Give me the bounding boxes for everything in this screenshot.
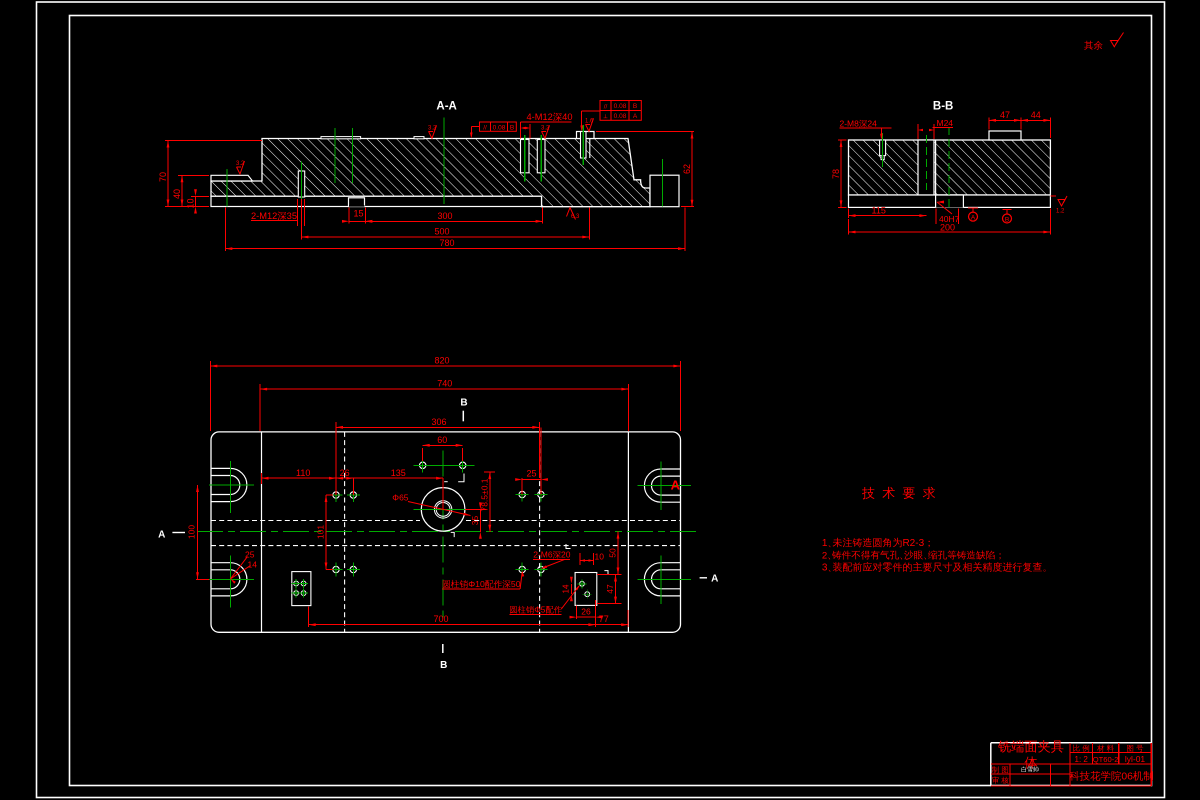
svg-text:06: 06 [1121, 772, 1133, 783]
svg-text:47: 47 [605, 584, 615, 594]
svg-text:100: 100 [187, 525, 197, 539]
svg-text:14: 14 [248, 560, 258, 570]
svg-text:300: 300 [437, 211, 452, 221]
svg-text:24: 24 [867, 119, 877, 129]
svg-text:10: 10 [595, 552, 605, 562]
svg-text:1: 2: 1: 2 [1075, 755, 1089, 764]
svg-text:25: 25 [245, 550, 255, 560]
svg-text:1.2: 1.2 [1056, 209, 1065, 215]
svg-text:77: 77 [599, 614, 609, 624]
svg-text:35: 35 [287, 211, 297, 221]
svg-text:1: 1 [822, 538, 828, 549]
svg-text:15: 15 [354, 209, 364, 219]
svg-text:B: B [460, 398, 467, 409]
svg-text://: // [604, 103, 608, 110]
svg-text:115: 115 [871, 206, 885, 216]
svg-text:500: 500 [434, 227, 449, 237]
svg-text:101: 101 [316, 525, 326, 539]
svg-text:A: A [711, 574, 718, 585]
svg-text:14: 14 [561, 584, 570, 593]
svg-text://: // [483, 125, 487, 132]
svg-text:700: 700 [433, 614, 448, 624]
svg-text:2-M6: 2-M6 [533, 550, 553, 560]
svg-text:60: 60 [437, 435, 447, 445]
svg-text:62: 62 [682, 164, 692, 174]
svg-text:B-B: B-B [933, 101, 953, 113]
svg-text:26: 26 [340, 468, 350, 478]
svg-text:44: 44 [1031, 110, 1041, 120]
svg-text:A: A [158, 530, 165, 541]
svg-text:4-M12: 4-M12 [527, 112, 553, 122]
svg-text:2: 2 [822, 550, 827, 561]
svg-text:Φ65: Φ65 [392, 492, 409, 502]
svg-text:A-A: A-A [436, 101, 456, 113]
svg-text:3: 3 [822, 563, 828, 574]
svg-text:40: 40 [562, 112, 572, 122]
svg-text:B: B [440, 660, 447, 671]
svg-text:1.6: 1.6 [585, 118, 594, 124]
svg-text:780: 780 [439, 238, 454, 248]
svg-text:50: 50 [511, 579, 521, 589]
svg-text:lyl-01: lyl-01 [1125, 754, 1146, 764]
svg-text:B: B [510, 124, 514, 131]
svg-text:200: 200 [940, 223, 955, 233]
svg-text:M24: M24 [937, 118, 954, 128]
svg-text:135: 135 [391, 468, 406, 478]
svg-text:47: 47 [1000, 110, 1010, 120]
svg-text:0.08: 0.08 [493, 124, 506, 131]
svg-text:26: 26 [581, 607, 591, 617]
svg-text:40: 40 [172, 189, 182, 199]
svg-text:740: 740 [437, 379, 452, 389]
svg-text:A: A [671, 478, 681, 493]
svg-text:B: B [1005, 216, 1009, 223]
svg-text:3.2: 3.2 [236, 161, 245, 167]
svg-text:0.08: 0.08 [614, 113, 627, 120]
svg-text:A: A [633, 113, 638, 120]
svg-text:B: B [633, 103, 637, 110]
svg-text:25: 25 [527, 469, 537, 479]
svg-text:Φ10: Φ10 [468, 579, 485, 589]
svg-text:A: A [971, 214, 976, 221]
svg-text:70: 70 [158, 172, 168, 182]
svg-text:6.3: 6.3 [571, 214, 580, 220]
svg-text:R2-3: R2-3 [902, 538, 924, 549]
svg-text:3.2: 3.2 [541, 125, 550, 131]
svg-text:10: 10 [186, 198, 196, 208]
svg-text:2-M8: 2-M8 [840, 119, 860, 129]
svg-text:3.2: 3.2 [428, 125, 437, 131]
svg-text:306: 306 [431, 417, 446, 427]
svg-text:20: 20 [561, 550, 571, 560]
svg-text:35: 35 [470, 516, 480, 526]
svg-text:110: 110 [296, 468, 310, 478]
svg-text:Φ5: Φ5 [534, 605, 546, 615]
svg-text:0.08: 0.08 [614, 103, 627, 110]
svg-text:QT60-2: QT60-2 [1093, 755, 1119, 764]
svg-text:50: 50 [608, 548, 618, 558]
svg-text:78: 78 [831, 169, 841, 179]
svg-text:40H7: 40H7 [939, 214, 960, 224]
svg-text:2-M12: 2-M12 [251, 211, 277, 221]
svg-text:820: 820 [434, 356, 449, 366]
